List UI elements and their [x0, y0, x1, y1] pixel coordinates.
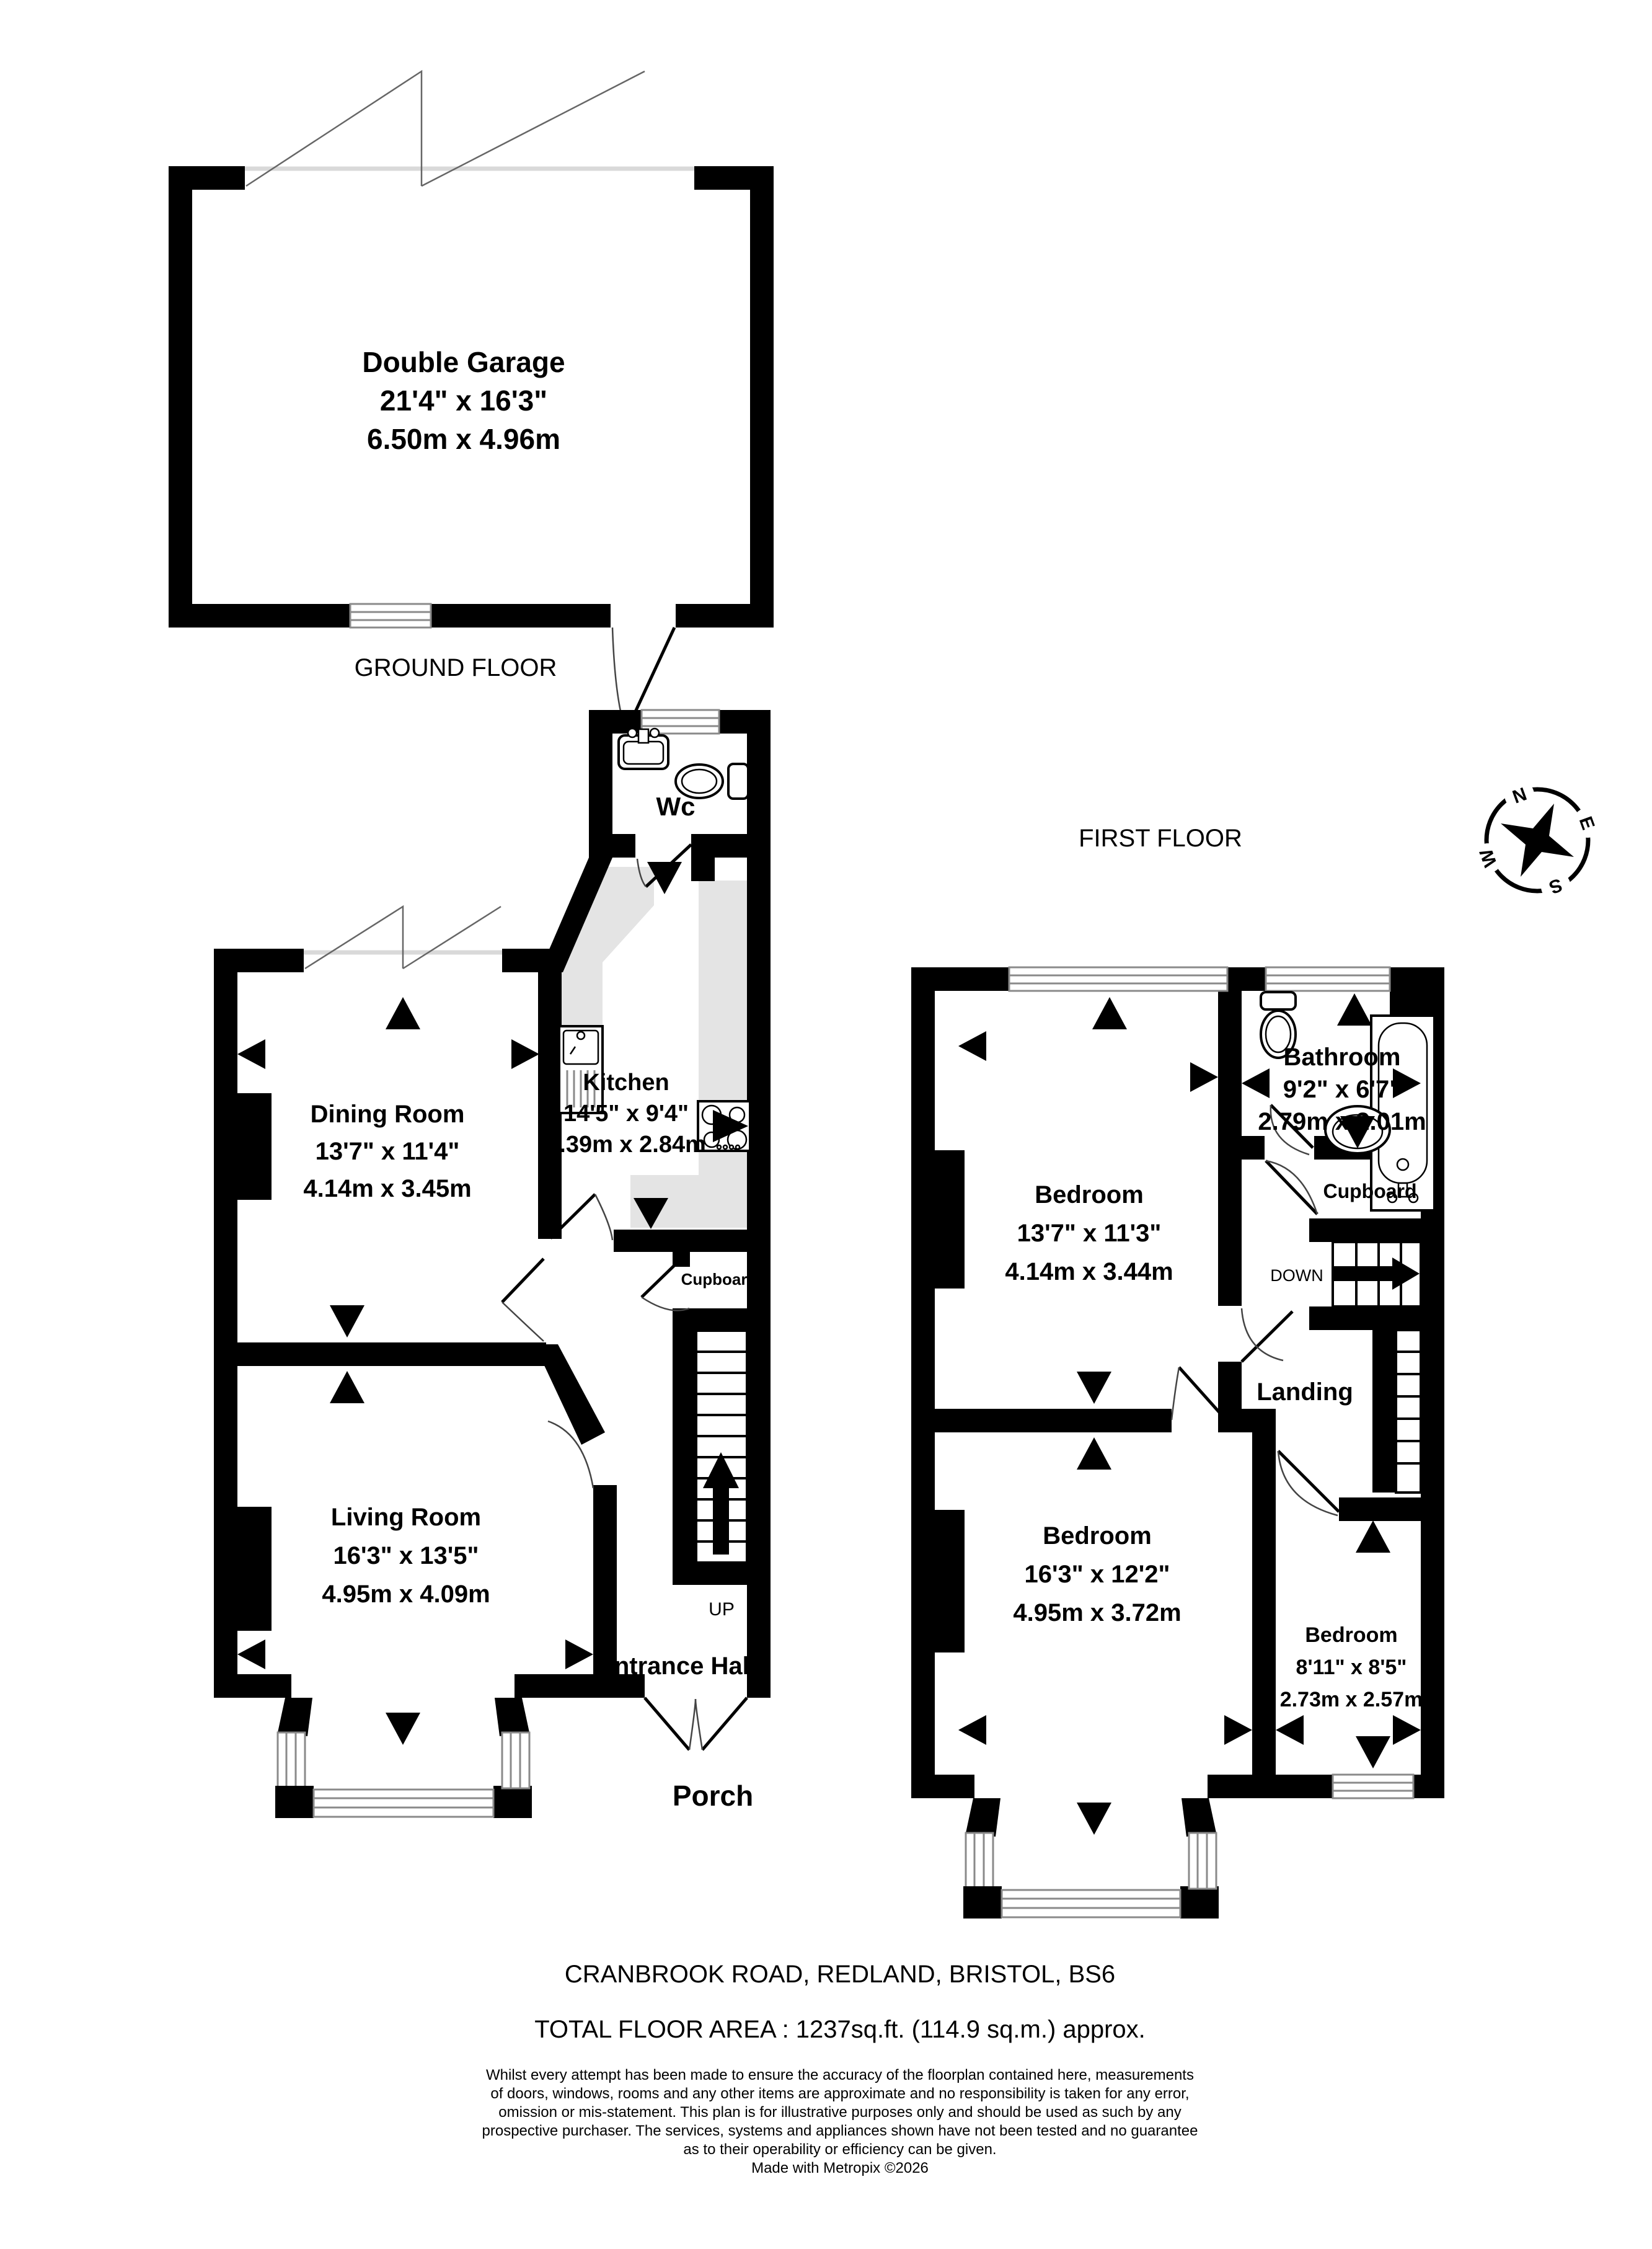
garage-plan: Double Garage 21'4" x 16'3" 6.50m x 4.96…	[169, 71, 774, 732]
disclaimer-line: prospective purchaser. The services, sys…	[335, 2122, 1345, 2140]
first-floor-plan: FIRST FLOOR	[911, 825, 1444, 1919]
bedroom2-door	[1172, 1367, 1226, 1420]
garage-label: Double Garage	[362, 346, 565, 378]
disclaimer-line: omission or mis-statement. This plan is …	[335, 2103, 1345, 2122]
bathroom-dim-metric: 2.79m x 2.01m	[1258, 1108, 1426, 1135]
compass-icon: N E S W	[1473, 780, 1602, 902]
dining-label: Dining Room	[311, 1101, 465, 1128]
bathroom-dim-imperial: 9'2" x 6'7"	[1283, 1076, 1401, 1103]
kitchen-dim-metric: 4.39m x 2.84m	[546, 1132, 706, 1158]
first-floor-label: FIRST FLOOR	[1079, 825, 1242, 852]
living-label: Living Room	[331, 1504, 481, 1531]
bedroom1-label: Bedroom	[1035, 1181, 1144, 1209]
dining-folding-door-icon	[305, 907, 501, 969]
cupboard-label-ground: Cupboard	[681, 1270, 758, 1289]
dining-dim-imperial: 13'7" x 11'4"	[316, 1138, 460, 1165]
ground-floor-label: GROUND FLOOR	[355, 654, 557, 681]
bedroom3-label: Bedroom	[1305, 1623, 1397, 1647]
down-arrow-icon	[1334, 1258, 1420, 1290]
living-dim-metric: 4.95m x 4.09m	[322, 1581, 490, 1608]
up-label: UP	[709, 1599, 735, 1620]
living-chimney	[237, 1507, 272, 1631]
bedroom3-dim-imperial: 8'11" x 8'5"	[1296, 1656, 1407, 1679]
dining-dim-metric: 4.14m x 3.45m	[303, 1175, 471, 1202]
porch-label: Porch	[673, 1780, 753, 1812]
metropix-credit: Made with Metropix ©2026	[335, 2159, 1345, 2178]
cupboard-label-first: Cupboard	[1323, 1180, 1416, 1202]
bathroom-window	[1266, 967, 1390, 991]
cupboard-door-first	[1266, 1161, 1317, 1214]
garage-window	[350, 604, 431, 628]
bedroom2-dim-imperial: 16'3" x 12'2"	[1025, 1561, 1170, 1588]
bathroom-label: Bathroom	[1284, 1044, 1401, 1071]
bedroom3-dim-metric: 2.73m x 2.57m	[1280, 1688, 1423, 1711]
bedroom2-dim-metric: 4.95m x 3.72m	[1013, 1599, 1181, 1626]
up-arrow-icon	[703, 1452, 739, 1555]
kitchen-dim-imperial: 14'5" x 9'4"	[563, 1101, 689, 1127]
ground-floor-plan: Wc Kitchen 14'5" x 9'4" 4.39m x 2.8	[214, 710, 771, 1818]
landing-label: Landing	[1257, 1378, 1353, 1406]
disclaimer-line: of doors, windows, rooms and any other i…	[335, 2085, 1345, 2103]
bedroom2-label: Bedroom	[1043, 1522, 1152, 1550]
living-dim-imperial: 16'3" x 13'5"	[333, 1542, 479, 1569]
direction-markers-ground	[237, 862, 748, 1745]
wc-sink-icon	[619, 729, 668, 769]
property-address: CRANBROOK ROAD, REDLAND, BRISTOL, BS6	[335, 1961, 1345, 1989]
wc-label: Wc	[656, 792, 696, 821]
disclaimer-line: Whilst every attempt has been made to en…	[335, 2066, 1345, 2085]
bedroom1-dim-imperial: 13'7" x 11'3"	[1017, 1220, 1162, 1247]
floorplan-canvas: Double Garage 21'4" x 16'3" 6.50m x 4.96…	[0, 0, 1652, 2249]
garage-dim-imperial: 21'4" x 16'3"	[380, 384, 547, 417]
front-door	[645, 1698, 747, 1750]
bedroom3-door	[1278, 1451, 1339, 1515]
entrance-hall-label: Entrance Hall	[598, 1652, 756, 1680]
footer: CRANBROOK ROAD, REDLAND, BRISTOL, BS6 TO…	[335, 1961, 1345, 2178]
kitchen-label: Kitchen	[583, 1070, 669, 1096]
bedroom3-window	[1333, 1775, 1413, 1798]
disclaimer-line: as to their operability or efficiency ca…	[335, 2140, 1345, 2159]
bedroom1-door	[1242, 1308, 1292, 1362]
stairs-ground	[696, 1331, 747, 1563]
garage-dim-metric: 6.50m x 4.96m	[367, 423, 560, 455]
bedroom1-dim-metric: 4.14m x 3.44m	[1005, 1258, 1173, 1285]
bedroom1-window	[1009, 967, 1227, 991]
total-floor-area: TOTAL FLOOR AREA : 1237sq.ft. (114.9 sq.…	[335, 2016, 1345, 2044]
disclaimer: Whilst every attempt has been made to en…	[335, 2066, 1345, 2159]
down-label: DOWN	[1270, 1266, 1323, 1285]
